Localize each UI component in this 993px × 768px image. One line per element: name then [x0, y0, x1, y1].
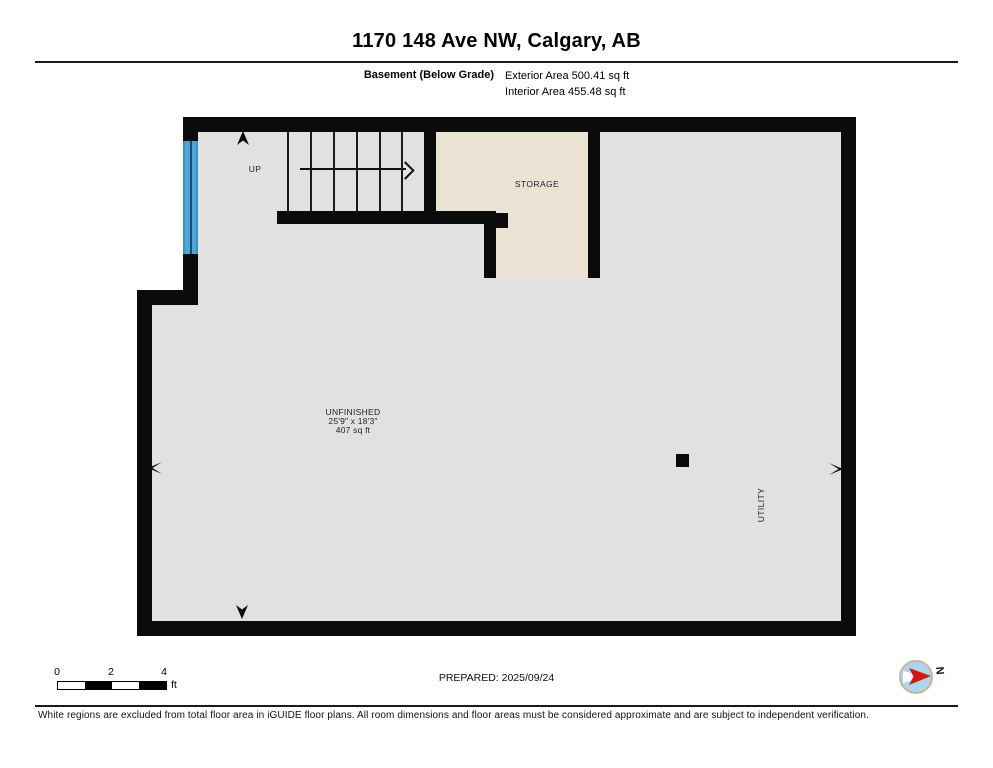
- wall-bottom: [137, 621, 856, 636]
- stairs-up-label: UP: [243, 164, 267, 174]
- wall-storage-right: [588, 132, 600, 278]
- floor-name-label: Basement (Below Grade): [364, 68, 494, 82]
- header-divider: [35, 61, 958, 63]
- stair-tread-line: [333, 132, 335, 211]
- floorplan-page: 1170 148 Ave NW, Calgary, AB Basement (B…: [0, 0, 993, 768]
- wall-left-lower: [137, 290, 152, 636]
- footer-divider: [35, 705, 958, 707]
- compass-icon: N: [895, 654, 951, 700]
- utility-room-label: UTILITY: [756, 488, 766, 522]
- page-title: 1170 148 Ave NW, Calgary, AB: [0, 30, 993, 53]
- wall-storage-left-lower: [484, 224, 496, 278]
- stair-tread-line: [287, 132, 289, 211]
- stair-tread-line: [356, 132, 358, 211]
- exterior-area-text: Exterior Area 500.41 sq ft: [505, 68, 629, 84]
- prepared-date: PREPARED: 2025/09/24: [0, 672, 993, 684]
- window: [183, 141, 198, 254]
- support-post: [676, 454, 689, 467]
- stair-tread-line: [379, 132, 381, 211]
- storage-floor-upper: [436, 132, 588, 210]
- storage-room-label: STORAGE: [477, 179, 597, 189]
- wall-right: [841, 117, 856, 636]
- stairs-direction-line: [300, 168, 406, 170]
- compass-north-label: N: [933, 666, 946, 675]
- disclaimer-text: White regions are excluded from total fl…: [38, 710, 869, 721]
- floor-area-lower-left: [152, 305, 198, 621]
- floor-subheader: Basement (Below Grade) Exterior Area 500…: [0, 68, 993, 100]
- interior-area-text: Interior Area 455.48 sq ft: [505, 84, 629, 100]
- wall-stairs-bottom: [277, 211, 496, 224]
- storage-floor-lower: [496, 210, 588, 278]
- unfinished-room-block: UNFINISHED 25'9" x 18'3" 407 sq ft: [283, 407, 423, 435]
- unfinished-room-area: 407 sq ft: [283, 426, 423, 435]
- window-pane-line: [190, 141, 192, 254]
- wall-top: [183, 117, 856, 132]
- area-summary: Exterior Area 500.41 sq ft Interior Area…: [505, 68, 629, 100]
- stair-tread-line: [310, 132, 312, 211]
